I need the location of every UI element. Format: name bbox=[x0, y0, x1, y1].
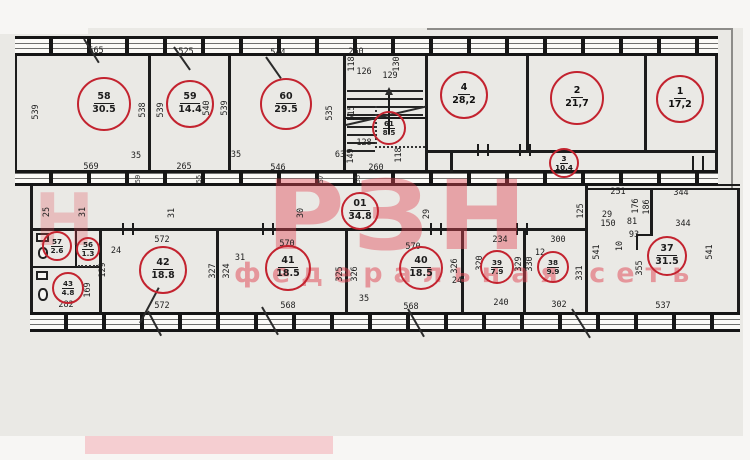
stair-arrow-head bbox=[385, 87, 393, 95]
room-number: 40 bbox=[411, 256, 430, 268]
watermark-smudge bbox=[85, 436, 333, 454]
dim-label: 327 bbox=[208, 263, 218, 278]
room-area: 4.8 bbox=[61, 289, 76, 297]
dim-label: 568 bbox=[280, 301, 295, 311]
toilet-icon bbox=[38, 288, 48, 301]
door-tick bbox=[702, 156, 704, 170]
dim-label: 355 bbox=[635, 260, 645, 275]
room-area: 8.5 bbox=[382, 129, 397, 137]
dim-label: 251 bbox=[610, 187, 625, 197]
dim-label: 129 bbox=[98, 262, 108, 277]
dim-label: 125 bbox=[576, 203, 586, 218]
scan-margin-corner bbox=[0, 0, 88, 34]
room-area: 9.9 bbox=[546, 268, 561, 276]
dim-label: 35 bbox=[359, 294, 369, 304]
room-number: 01 bbox=[350, 199, 369, 211]
dim-label: 234 bbox=[492, 235, 507, 245]
room-label-41: 4118.5 bbox=[265, 245, 311, 291]
dim-label: 572 bbox=[154, 235, 169, 245]
dim-label: 325 bbox=[335, 266, 345, 281]
dim-label: 546 bbox=[270, 163, 285, 173]
site-boundary-line bbox=[427, 28, 733, 30]
wall bbox=[718, 184, 740, 186]
dim-label: 302 bbox=[551, 300, 566, 310]
dim-label: 265 bbox=[176, 162, 191, 172]
door-tick bbox=[262, 223, 264, 235]
dim-label: 128 bbox=[356, 138, 371, 148]
door-opening-dotted bbox=[78, 265, 98, 267]
dim-label: 539 bbox=[220, 100, 230, 115]
room-label-37: 3731.5 bbox=[647, 236, 687, 276]
dim-label: 326 bbox=[450, 258, 460, 273]
door-tick bbox=[516, 223, 518, 235]
dim-label: 130 bbox=[392, 56, 402, 71]
room-label-60: 6029.5 bbox=[260, 78, 312, 130]
dim-label: 344 bbox=[675, 219, 690, 229]
exterior-wall-windows-bottom bbox=[30, 312, 740, 332]
room-number: 59 bbox=[180, 92, 199, 104]
wall-corridor-01 bbox=[30, 228, 588, 231]
door-tick bbox=[692, 156, 694, 170]
room-area: 10,4 bbox=[554, 164, 574, 172]
wall bbox=[345, 231, 348, 313]
dim-label: 30 bbox=[296, 208, 306, 218]
room-label-2: 221,7 bbox=[550, 71, 604, 125]
room-label-42: 4218.8 bbox=[139, 246, 187, 294]
dim-label: 565 bbox=[88, 46, 103, 56]
dim-label: 81 bbox=[627, 217, 637, 227]
dim-label: 10 bbox=[615, 241, 625, 251]
dim-label: 55 bbox=[195, 175, 203, 183]
room-label-57: 572.6 bbox=[42, 231, 72, 261]
room-area: 17,2 bbox=[668, 99, 691, 110]
dim-label: 535 bbox=[325, 105, 335, 120]
dim-label: 31 bbox=[78, 207, 88, 217]
dim-label: 29 bbox=[422, 209, 432, 219]
site-boundary-line bbox=[731, 28, 733, 188]
leader-line bbox=[265, 56, 282, 78]
room-area: 31.5 bbox=[655, 256, 678, 267]
room-number: 60 bbox=[276, 92, 295, 104]
room-label-43: 434.8 bbox=[52, 272, 84, 304]
exterior-wall-windows-top bbox=[15, 36, 718, 56]
room-area: 29.5 bbox=[274, 104, 297, 115]
dim-label: 330 bbox=[525, 256, 535, 271]
dim-label: 24 bbox=[452, 276, 462, 286]
door-tick bbox=[430, 223, 432, 235]
sink-icon bbox=[36, 271, 48, 280]
room-number: 4 bbox=[458, 83, 471, 95]
dim-label: 538 bbox=[138, 102, 148, 117]
room-label-01: 0134.8 bbox=[341, 192, 379, 230]
exterior-wall-windows-middle bbox=[15, 170, 718, 186]
dim-label: 260 bbox=[368, 163, 383, 173]
dim-label: 541 bbox=[592, 244, 602, 259]
room-label-56: 561.3 bbox=[76, 237, 100, 261]
room-area: 18.5 bbox=[409, 268, 432, 279]
room-number: 37 bbox=[657, 244, 676, 256]
dim-label: 176 bbox=[631, 198, 641, 213]
room-area: 7.9 bbox=[490, 268, 505, 276]
room-area: 2.6 bbox=[50, 247, 65, 255]
door-tick bbox=[529, 144, 531, 156]
wall bbox=[30, 186, 33, 314]
dim-label: 126 bbox=[356, 67, 371, 77]
room-label-1: 117,2 bbox=[656, 75, 704, 123]
dim-label: 569 bbox=[83, 162, 98, 172]
wall bbox=[644, 56, 647, 152]
room-area: 1.3 bbox=[81, 250, 96, 258]
dim-label: 240 bbox=[493, 298, 508, 308]
dim-label: 149 bbox=[346, 148, 356, 163]
dim-label: 55 bbox=[354, 175, 362, 183]
room-label-38: 389.9 bbox=[537, 251, 569, 283]
wall-stub bbox=[450, 152, 453, 172]
room-number: 58 bbox=[94, 92, 113, 104]
door-tick bbox=[440, 223, 442, 235]
room-area: 14.4 bbox=[178, 104, 201, 115]
dim-label: 35 bbox=[131, 151, 141, 161]
wall bbox=[526, 56, 529, 152]
room-label-58: 5830.5 bbox=[77, 77, 131, 131]
scan-margin-right bbox=[743, 0, 750, 460]
door-tick bbox=[519, 144, 521, 156]
dim-label: 568 bbox=[403, 302, 418, 312]
dim-label: 31 bbox=[235, 253, 245, 263]
dim-label: 537 bbox=[655, 301, 670, 311]
dim-label: 57 bbox=[317, 175, 325, 183]
dim-label: 63 bbox=[335, 150, 345, 160]
wall bbox=[148, 56, 151, 170]
room-area: 18.5 bbox=[276, 268, 299, 279]
dim-label: 539 bbox=[31, 104, 41, 119]
room-label-61: 618.5 bbox=[372, 111, 406, 145]
floor-plan-scan: Н РЗН федеральная сеть 56552554426053953… bbox=[0, 0, 750, 460]
dim-label: 24 bbox=[111, 246, 121, 256]
dim-label: 59 bbox=[134, 175, 142, 183]
room-number: 1 bbox=[674, 87, 687, 99]
dim-label: 515 bbox=[347, 105, 357, 120]
dim-label: 150 bbox=[600, 219, 615, 229]
dim-label: 25 bbox=[42, 207, 52, 217]
room-area: 21,7 bbox=[565, 98, 588, 109]
dim-label: 544 bbox=[270, 48, 285, 58]
wall bbox=[737, 188, 740, 314]
dim-label: 331 bbox=[575, 265, 585, 280]
wall-notch bbox=[637, 234, 653, 236]
dim-label: 329 bbox=[514, 256, 524, 271]
room-number: 42 bbox=[153, 258, 172, 270]
dim-label: 169 bbox=[83, 282, 93, 297]
room-label-59: 5914.4 bbox=[166, 80, 214, 128]
dim-label: 326 bbox=[350, 266, 360, 281]
dim-label: 572 bbox=[154, 301, 169, 311]
dim-label: 129 bbox=[382, 71, 397, 81]
room-label-39: 397.9 bbox=[480, 250, 514, 284]
wall bbox=[15, 56, 17, 170]
room-number: 41 bbox=[278, 256, 297, 268]
dim-label: 118 bbox=[394, 147, 404, 162]
wall bbox=[461, 231, 464, 313]
room-label-3: 310,4 bbox=[549, 148, 579, 178]
dim-label: 300 bbox=[550, 235, 565, 245]
dim-label: 186 bbox=[642, 199, 652, 214]
dim-label: 324 bbox=[222, 263, 232, 278]
dim-label: 93 bbox=[629, 230, 639, 240]
room-number: 2 bbox=[571, 86, 584, 98]
room-label-4: 428,2 bbox=[440, 71, 488, 119]
dim-label: 344 bbox=[673, 188, 688, 198]
wall bbox=[523, 231, 526, 313]
door-tick bbox=[132, 223, 134, 235]
room-area: 28,2 bbox=[452, 95, 475, 106]
room-area: 34.8 bbox=[348, 211, 371, 222]
dim-label: 541 bbox=[705, 244, 715, 259]
door-tick bbox=[487, 144, 489, 156]
dim-label: 539 bbox=[156, 102, 166, 117]
door-tick bbox=[477, 144, 479, 156]
door-tick bbox=[272, 223, 274, 235]
room-area: 18.8 bbox=[151, 270, 174, 281]
dim-label: 35 bbox=[231, 150, 241, 160]
door-tick bbox=[122, 223, 124, 235]
dim-label: 31 bbox=[167, 208, 177, 218]
scan-margin-top bbox=[0, 0, 750, 28]
door-tick bbox=[526, 223, 528, 235]
dim-label: 525 bbox=[178, 47, 193, 57]
room-label-40: 4018.5 bbox=[399, 246, 443, 290]
room-area: 30.5 bbox=[92, 104, 115, 115]
